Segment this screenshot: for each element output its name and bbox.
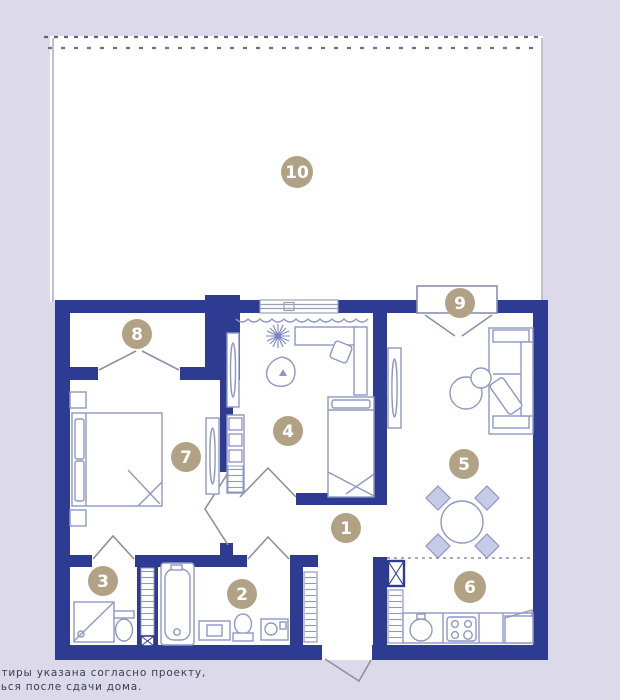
stove: [447, 617, 476, 641]
sink-cabinet: [199, 621, 230, 640]
disclaimer-text: ртиры указана согласно проекту, ться пос…: [0, 666, 206, 694]
toilet-room3: [114, 611, 134, 641]
badge-room-8: 8: [122, 319, 152, 349]
shower: [74, 602, 114, 642]
bathtub: [161, 563, 194, 645]
wall-bottom-left: [55, 645, 322, 660]
dresser-room7: [206, 418, 219, 494]
tv-stand: [388, 348, 401, 428]
floor-plan-page: 10 8 9 7 4 5 1 3: [0, 0, 620, 700]
kitchen-shaft-x-box: [388, 561, 404, 586]
badge-label-9: 9: [454, 294, 466, 314]
badge-label-7: 7: [180, 448, 192, 468]
wall-bottom-right: [372, 645, 548, 660]
badge-room-3: 3: [88, 566, 118, 596]
badge-label-6: 6: [464, 578, 476, 598]
wall-kitchen-left: [373, 557, 387, 648]
dresser-room4: [227, 333, 239, 407]
vent-shaft-hatch: [141, 568, 154, 628]
nightstand-bottom: [70, 510, 86, 526]
toilet-room2: [233, 614, 253, 641]
wardrobe-room4: [227, 415, 244, 493]
badge-label-2: 2: [236, 585, 248, 605]
badge-label-10: 10: [285, 163, 309, 183]
desk: [295, 327, 358, 345]
badge-label-8: 8: [131, 325, 143, 345]
wall-room8-bottom-left: [55, 367, 98, 380]
tall-cabinet: [388, 590, 403, 643]
desk-shelf: [354, 327, 367, 395]
badge-label-5: 5: [458, 455, 470, 475]
round-pouf-small: [471, 368, 491, 388]
wall-top-left-of-window: [240, 300, 260, 313]
disclaimer-line-2: ться после сдачи дома.: [0, 680, 206, 694]
badge-room-4: 4: [273, 416, 303, 446]
kitchen-counter: [403, 610, 533, 643]
badge-room-7: 7: [171, 442, 201, 472]
badge-room-9: 9: [445, 288, 475, 318]
wall-top-right: [496, 300, 548, 313]
wall-bath3-top-left: [70, 555, 92, 567]
sofa: [489, 328, 533, 434]
dining-table: [441, 501, 483, 543]
floor-plan-drawing: 10 8 9 7 4 5 1 3: [0, 0, 620, 700]
entrance-door: [325, 659, 371, 681]
nightstand-top: [70, 392, 86, 408]
badge-label-1: 1: [340, 519, 352, 539]
single-bed: [328, 397, 374, 497]
badge-room-6: 6: [454, 571, 486, 603]
wall-hall-bath2: [290, 555, 303, 648]
wall-right: [533, 300, 548, 660]
badge-room-10: 10: [281, 156, 313, 188]
wall-room4-room5: [373, 313, 387, 502]
vent-shaft: [141, 568, 154, 646]
shaft-x-box: [141, 636, 154, 646]
hallway-cabinet: [304, 572, 317, 642]
badge-room-5: 5: [449, 449, 479, 479]
window-room4: [260, 300, 338, 313]
badge-room-2: 2: [227, 579, 257, 609]
double-bed: [72, 413, 162, 506]
badge-label-3: 3: [97, 572, 109, 592]
badge-room-1: 1: [331, 513, 361, 543]
wall-left: [55, 300, 70, 660]
wall-top-right-of-window: [338, 300, 418, 313]
wall-top-room8: [55, 300, 205, 313]
badge-label-4: 4: [282, 422, 294, 442]
disclaimer-line-1: ртиры указана согласно проекту,: [0, 666, 206, 680]
washing-machine: [261, 619, 288, 640]
